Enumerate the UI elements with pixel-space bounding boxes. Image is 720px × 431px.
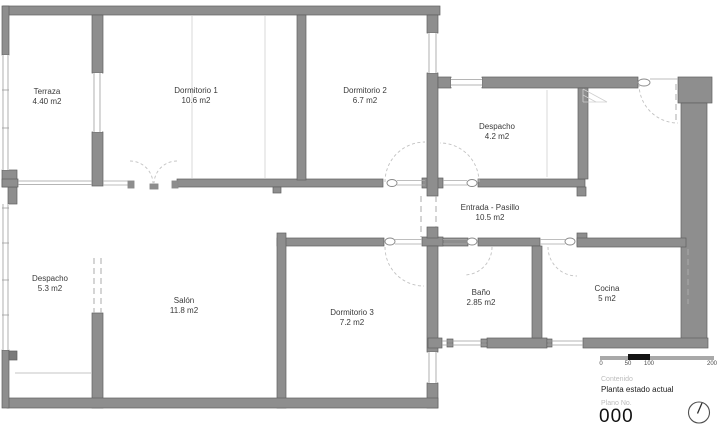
- room-area: 4.40 m2: [33, 97, 62, 107]
- door-arc-despacho: [440, 143, 479, 182]
- room-name: Baño: [467, 288, 496, 298]
- door-arc-dormitorio3: [385, 247, 424, 286]
- room-area: 5 m2: [595, 294, 620, 304]
- room-name: Cocina: [595, 284, 620, 294]
- room-name: Salón: [170, 296, 198, 306]
- room-name: Dormitorio 3: [330, 308, 374, 318]
- room-area: 6.7 m2: [343, 96, 387, 106]
- floor-plan-page: Terraza 4.40 m2 Dormitorio 1 10.6 m2 Dor…: [0, 0, 720, 431]
- walls-layer: [2, 6, 712, 408]
- room-area: 2.85 m2: [467, 298, 496, 308]
- room-name: Dormitorio 2: [343, 86, 387, 96]
- room-name: Despacho: [479, 122, 515, 132]
- door-arc-cocina: [548, 247, 577, 276]
- room-area: 4.2 m2: [479, 132, 515, 142]
- room-area: 11.8 m2: [170, 306, 198, 316]
- door-arc-bano: [464, 247, 492, 275]
- room-label-despacho-4: Despacho 4.2 m2: [479, 122, 515, 142]
- floorplan-drawing: [0, 0, 720, 431]
- room-area: 5.3 m2: [32, 284, 68, 294]
- content-label: Contenido: [601, 376, 633, 383]
- room-area: 7.2 m2: [330, 318, 374, 328]
- room-label-entrada-pasillo: Entrada - Pasillo 10.5 m2: [461, 203, 520, 223]
- compass-icon: [689, 402, 710, 423]
- room-name: Dormitorio 1: [174, 86, 218, 96]
- room-area: 10.5 m2: [461, 213, 520, 223]
- room-label-dormitorio-1: Dormitorio 1 10.6 m2: [174, 86, 218, 106]
- plan-no-value: 000: [599, 406, 634, 428]
- door-arc-entrance: [639, 84, 678, 123]
- room-label-bano: Baño 2.85 m2: [467, 288, 496, 308]
- room-name: Despacho: [32, 274, 68, 284]
- dashed-openings-layer: [94, 84, 688, 313]
- room-label-despacho-5: Despacho 5.3 m2: [32, 274, 68, 294]
- room-name: Entrada - Pasillo: [461, 203, 520, 213]
- content-value: Planta estado actual: [601, 385, 674, 394]
- room-name: Terraza: [33, 87, 62, 97]
- room-label-terraza: Terraza 4.40 m2: [33, 87, 62, 107]
- room-label-salon: Salón 11.8 m2: [170, 296, 198, 316]
- room-label-cocina: Cocina 5 m2: [595, 284, 620, 304]
- room-label-dormitorio-3: Dormitorio 3 7.2 m2: [330, 308, 374, 328]
- room-area: 10.6 m2: [174, 96, 218, 106]
- fixture-lines-layer: [192, 16, 607, 178]
- room-label-dormitorio-2: Dormitorio 2 6.7 m2: [343, 86, 387, 106]
- door-arc-dormitorio2: [385, 142, 425, 182]
